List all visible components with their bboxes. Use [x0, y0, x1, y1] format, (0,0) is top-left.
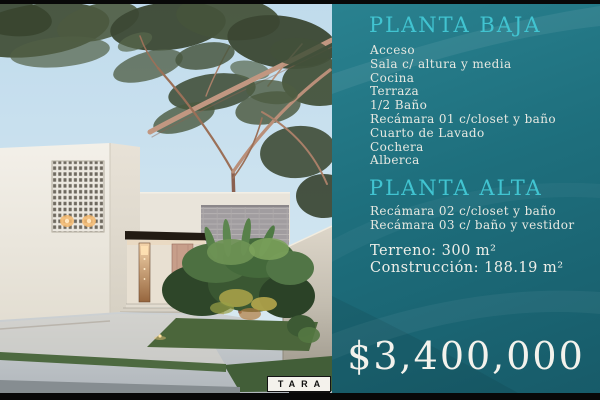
- white-volume: [0, 143, 140, 329]
- list-item: Recámara 01 c/closet y baño: [370, 113, 556, 127]
- list-item: Terraza: [370, 85, 556, 99]
- list-item: Cocina: [370, 72, 556, 86]
- lattice-panel: [52, 161, 104, 232]
- list-item: Cochera: [370, 141, 556, 155]
- planta-alta-list: Recámara 02 c/closet y baño Recámara 03 …: [370, 204, 574, 232]
- construccion-spec: Construcción: 188.19 m²: [370, 260, 564, 276]
- panel-content: PLANTA BAJA Acceso Sala c/ altura y medi…: [332, 0, 600, 393]
- list-item: Cuarto de Lavado: [370, 127, 556, 141]
- house-render: [0, 0, 332, 393]
- list-item: 1/2 Baño: [370, 99, 556, 113]
- real-estate-flyer: TARA PLANTA BAJA Acceso Sala c/ altura y…: [0, 0, 600, 400]
- list-item: Sala c/ altura y media: [370, 58, 556, 72]
- planta-baja-title: PLANTA BAJA: [369, 13, 542, 37]
- terreno-spec: Terreno: 300 m²: [370, 243, 496, 259]
- list-item: Acceso: [370, 44, 556, 58]
- list-item: Recámara 02 c/closet y baño: [370, 204, 574, 218]
- planta-alta-title: PLANTA ALTA: [369, 176, 543, 200]
- list-item: Recámara 03 c/ baño y vestidor: [370, 218, 574, 232]
- info-panel: PLANTA BAJA Acceso Sala c/ altura y medi…: [332, 0, 600, 393]
- house-photo: [0, 0, 332, 393]
- price: $3,400,000: [332, 334, 600, 378]
- tara-logo-text: TARA: [272, 380, 326, 389]
- tara-logo: TARA: [267, 376, 331, 392]
- top-black-bar: [0, 0, 600, 4]
- bottom-black-bar: [0, 393, 600, 400]
- list-item: Alberca: [370, 154, 556, 168]
- planta-baja-list: Acceso Sala c/ altura y media Cocina Ter…: [370, 44, 556, 168]
- lot-specs: Terreno: 300 m² Construcción: 188.19 m²: [370, 243, 564, 276]
